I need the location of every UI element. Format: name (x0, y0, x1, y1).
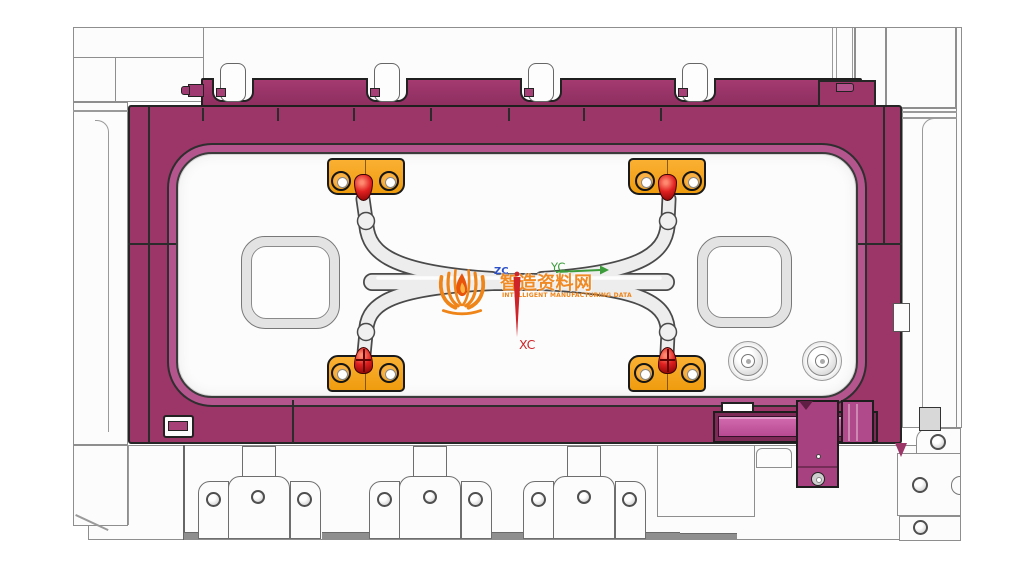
side-plate-left-bottom[interactable] (73, 445, 128, 526)
watermark-logo (434, 262, 490, 318)
latch-end-block-line (848, 404, 850, 441)
bar-slot-pin (370, 88, 380, 97)
plate-seam-right-v (883, 107, 885, 244)
clamp-wing[interactable] (290, 481, 321, 539)
clamp-neck (567, 446, 601, 478)
bracket-bolt (634, 363, 654, 383)
br-bracket-bolt (930, 434, 946, 450)
clamp-bolt (577, 490, 591, 504)
top-plate-seam-2 (836, 28, 837, 78)
nozzle-br-cross-h (660, 359, 675, 361)
clamp-bar-pin-right (836, 83, 854, 92)
square-boss-right-inner (707, 246, 782, 318)
y-axis-label: YC (551, 260, 565, 274)
bracket-bolt (681, 363, 701, 383)
plate-tick (660, 108, 662, 121)
bottom-plate-left-edge (183, 445, 185, 540)
clamp-neck (413, 446, 447, 478)
br-plate-1-bolt (912, 477, 928, 493)
clamp-bolt (468, 492, 483, 507)
plate-tick (583, 108, 585, 121)
clamp-wing[interactable] (523, 481, 554, 539)
eject-pin (168, 421, 188, 431)
clamp-block[interactable] (228, 476, 290, 539)
clamp-bolt (251, 490, 265, 504)
x-axis-label: XC (519, 337, 535, 352)
clamp-neck (242, 446, 276, 478)
plate-seam-bottom-v (292, 400, 294, 443)
latch-arm-dot (816, 454, 821, 459)
base-gap-strip (646, 532, 680, 540)
clamp-bolt (377, 492, 392, 507)
clamp-bar-pin-left (188, 84, 204, 97)
backplate-top-left-a[interactable] (73, 27, 205, 58)
plate-tick (277, 108, 279, 121)
clamp-bolt (423, 490, 437, 504)
side-plate-left-topline (73, 110, 128, 112)
side-plate-left-contour (95, 120, 109, 432)
clamp-block[interactable] (399, 476, 461, 539)
clamp-block[interactable] (553, 476, 615, 539)
top-plate-seam-3 (852, 28, 853, 80)
nozzle-bl-cross-h (356, 359, 371, 361)
clamp-bar-pin-left-tip (181, 86, 190, 95)
plate-corner-chamfer (895, 443, 907, 457)
bracket-bolt (379, 171, 399, 191)
br-plate-2-bolt (913, 520, 928, 535)
plate-tick (353, 108, 355, 121)
latch-end-tab (919, 407, 941, 431)
clamp-bolt (622, 492, 637, 507)
clamp-wing[interactable] (461, 481, 492, 539)
plate-seam-left-v (148, 107, 150, 442)
watermark-subtitle: INTELLIGENT MANUFACTURING DATA (502, 292, 632, 299)
bar-slot-pin (216, 88, 226, 97)
plate-seam-right-h (858, 243, 902, 245)
bracket-bolt (682, 171, 702, 191)
backplate-top-left-b[interactable] (73, 57, 117, 102)
nozzle-bl-cross-v (363, 349, 365, 372)
base-gap-strip (492, 532, 523, 540)
clamp-wing[interactable] (369, 481, 400, 539)
base-gap-strip (184, 532, 198, 540)
bar-slot-pin (524, 88, 534, 97)
backplate-top-right-b[interactable] (886, 27, 956, 108)
cad-viewport[interactable]: ZC 智造资料网 INTELLIGENT MANUFACTURING DATA … (0, 0, 1036, 569)
clamp-bolt (531, 492, 546, 507)
clamp-wing[interactable] (615, 481, 646, 539)
bracket-bolt (331, 171, 351, 191)
br-plate-2[interactable] (899, 516, 961, 541)
round-boss-a-dot (746, 359, 751, 364)
plate-tick (508, 108, 510, 121)
side-plate-right-topline-1 (902, 111, 957, 113)
latch-arm-step (798, 466, 837, 468)
clamp-bolt (297, 492, 312, 507)
plate-seam-left-h (128, 243, 176, 245)
br-plate-under-latch[interactable] (657, 445, 755, 517)
bracket-bolt (379, 363, 399, 383)
bracket-bolt (635, 171, 655, 191)
square-boss-left-inner (251, 246, 330, 319)
side-plate-right-contour (922, 118, 936, 430)
bar-slot-pin (678, 88, 688, 97)
clamp-wing[interactable] (198, 481, 229, 539)
bottom-plate-inner-edge (128, 445, 129, 525)
plate-tick (202, 108, 204, 121)
clamp-bolt (206, 492, 221, 507)
top-plate-seam-1 (832, 28, 833, 78)
nozzle-br-cross-v (667, 349, 669, 372)
br-small-tab[interactable] (756, 448, 792, 468)
plate-right-notch (893, 303, 910, 332)
latch-arm-notch (799, 401, 813, 410)
base-gap-strip (322, 532, 369, 540)
round-boss-b-dot (820, 359, 825, 364)
latch-screw-core (816, 477, 822, 483)
plate-tick (430, 108, 432, 121)
latch-end-block-line (856, 404, 858, 441)
base-gap-strip (680, 533, 737, 540)
bracket-bolt (331, 363, 351, 383)
